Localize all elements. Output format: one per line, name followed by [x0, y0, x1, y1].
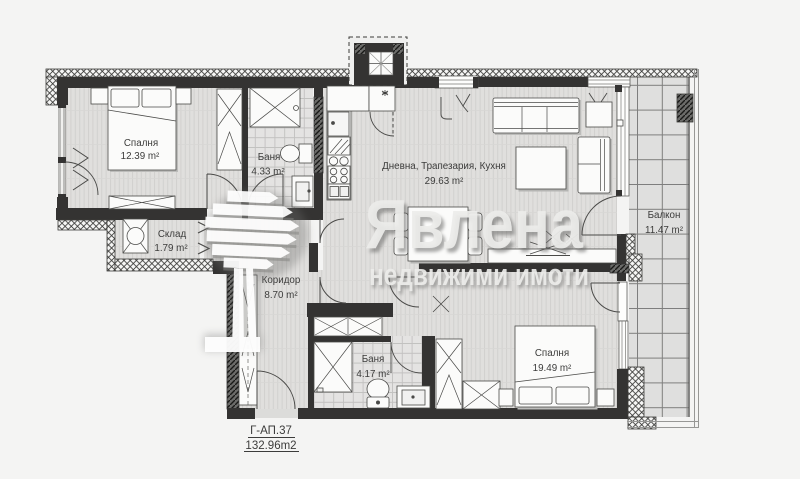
svg-text:8.70 m²: 8.70 m²	[264, 290, 298, 301]
svg-text:Дневна, Трапезария, Кухня: Дневна, Трапезария, Кухня	[382, 161, 506, 172]
svg-text:132.96m2: 132.96m2	[245, 440, 296, 452]
svg-text:1.79 m²: 1.79 m²	[154, 243, 188, 254]
svg-text:Баня: Баня	[362, 354, 385, 365]
svg-text:12.39 m²: 12.39 m²	[121, 151, 160, 162]
svg-text:Баня: Баня	[258, 152, 281, 163]
svg-text:19.49 m²: 19.49 m²	[533, 363, 572, 374]
svg-text:Спалня: Спалня	[535, 348, 569, 359]
svg-text:Склад: Склад	[158, 229, 187, 240]
svg-text:Г-АП.37: Г-АП.37	[250, 425, 292, 437]
svg-text:11.47 m²: 11.47 m²	[645, 225, 684, 236]
svg-text:4.33 m²: 4.33 m²	[251, 167, 285, 178]
svg-text:Явлена: Явлена	[365, 185, 584, 263]
svg-text:Балкон: Балкон	[648, 210, 681, 221]
svg-text:Спалня: Спалня	[124, 138, 158, 149]
svg-text:недвижими имоти: недвижими имоти	[369, 257, 589, 292]
svg-text:4.17 m²: 4.17 m²	[356, 369, 390, 380]
